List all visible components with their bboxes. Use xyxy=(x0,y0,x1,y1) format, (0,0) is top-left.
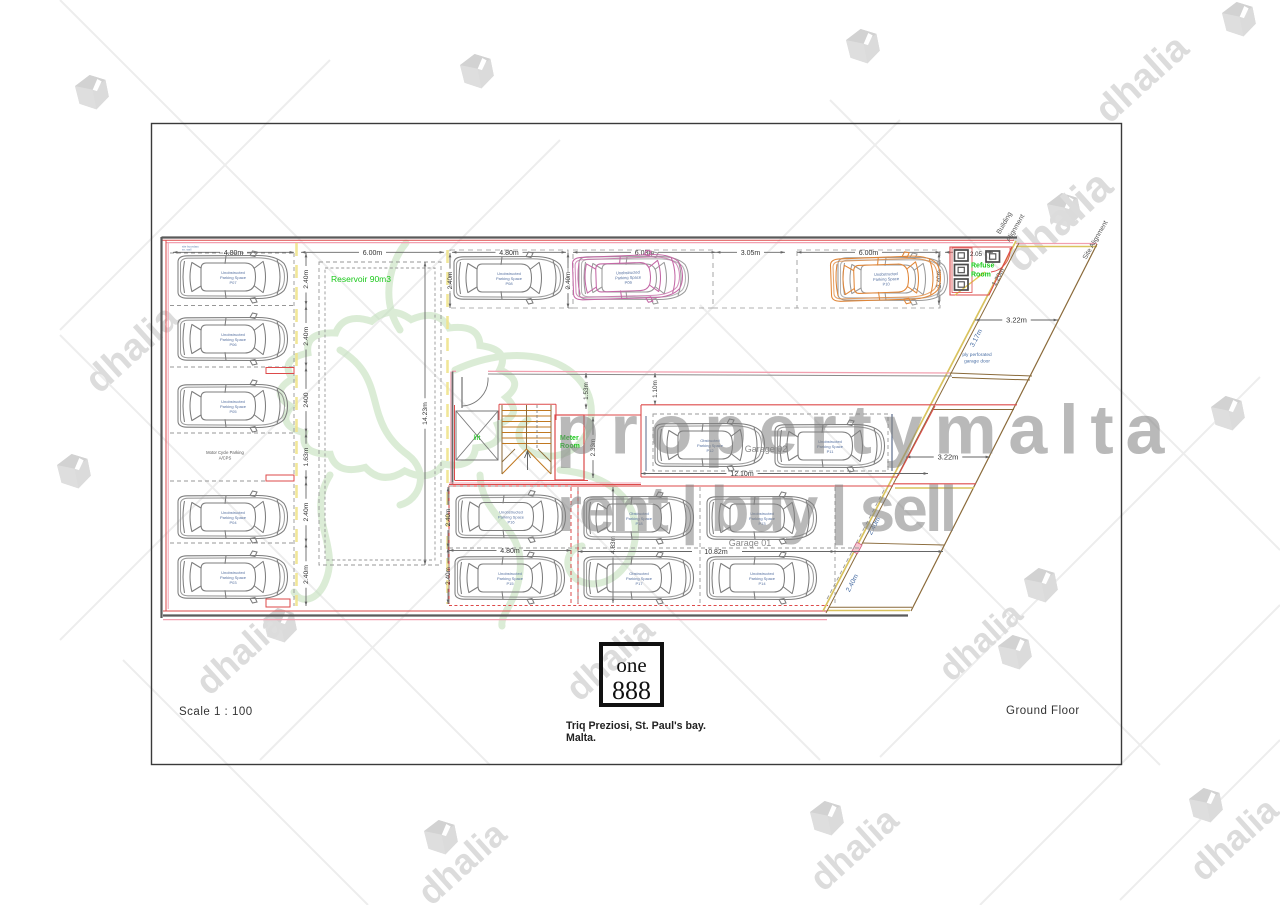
svg-text:4.80m: 4.80m xyxy=(499,250,519,257)
svg-text:1.63m: 1.63m xyxy=(303,447,310,466)
svg-text:P08: P08 xyxy=(505,281,513,286)
svg-text:2400: 2400 xyxy=(303,392,310,407)
svg-text:4.80m: 4.80m xyxy=(500,548,520,555)
svg-text:P06: P06 xyxy=(229,342,237,347)
svg-text:2.40m: 2.40m xyxy=(445,567,452,585)
svg-text:garage door: garage door xyxy=(964,359,990,365)
svg-text:6.00m: 6.00m xyxy=(363,250,383,257)
svg-text:P16: P16 xyxy=(507,520,515,525)
svg-text:P17: P17 xyxy=(635,581,643,586)
svg-text:ply perforated: ply perforated xyxy=(962,352,992,358)
svg-text:Reservoir 90m3: Reservoir 90m3 xyxy=(331,274,391,284)
svg-text:rent | buy | sell: rent | buy | sell xyxy=(557,473,954,546)
svg-text:2.40m: 2.40m xyxy=(303,269,310,288)
svg-text:A/CPS: A/CPS xyxy=(219,456,232,461)
svg-text:P09: P09 xyxy=(625,280,633,285)
svg-text:lift: lift xyxy=(474,435,481,442)
svg-text:P15: P15 xyxy=(506,581,514,586)
svg-text:888: 888 xyxy=(612,676,651,705)
svg-text:Ground Floor: Ground Floor xyxy=(1006,705,1080,717)
svg-text:propertymalta: propertymalta xyxy=(556,391,1176,469)
svg-text:2.40m: 2.40m xyxy=(445,509,452,527)
svg-text:2.40m: 2.40m xyxy=(303,565,310,584)
svg-text:Scale 1 : 100: Scale 1 : 100 xyxy=(179,706,253,718)
svg-text:2.40m: 2.40m xyxy=(565,272,572,290)
svg-text:2.40m: 2.40m xyxy=(447,272,454,290)
svg-text:Refuse: Refuse xyxy=(971,263,994,270)
svg-text:ex. wall: ex. wall xyxy=(182,248,192,252)
svg-text:P14: P14 xyxy=(758,581,766,586)
svg-text:Motor Cycle Parking: Motor Cycle Parking xyxy=(206,450,244,455)
svg-text:Room: Room xyxy=(971,272,991,279)
svg-text:P04: P04 xyxy=(229,520,237,525)
svg-text:one: one xyxy=(616,653,646,677)
svg-text:2.40m: 2.40m xyxy=(303,502,310,521)
svg-text:Triq Preziosi, St. Paul's bay.: Triq Preziosi, St. Paul's bay. xyxy=(566,720,706,732)
svg-text:2.05: 2.05 xyxy=(970,251,983,258)
svg-text:P07: P07 xyxy=(229,280,237,285)
svg-text:3.22m: 3.22m xyxy=(1006,316,1027,325)
svg-text:P03: P03 xyxy=(229,580,237,585)
svg-text:2.40m: 2.40m xyxy=(303,326,310,345)
svg-text:14.23m: 14.23m xyxy=(422,402,429,425)
svg-text:10.82m: 10.82m xyxy=(704,549,728,556)
svg-text:Malta.: Malta. xyxy=(566,732,596,744)
svg-text:3.05m: 3.05m xyxy=(741,250,761,257)
svg-text:P05: P05 xyxy=(229,409,237,414)
svg-text:6.00m: 6.00m xyxy=(859,250,879,257)
svg-text:P10: P10 xyxy=(883,281,891,286)
